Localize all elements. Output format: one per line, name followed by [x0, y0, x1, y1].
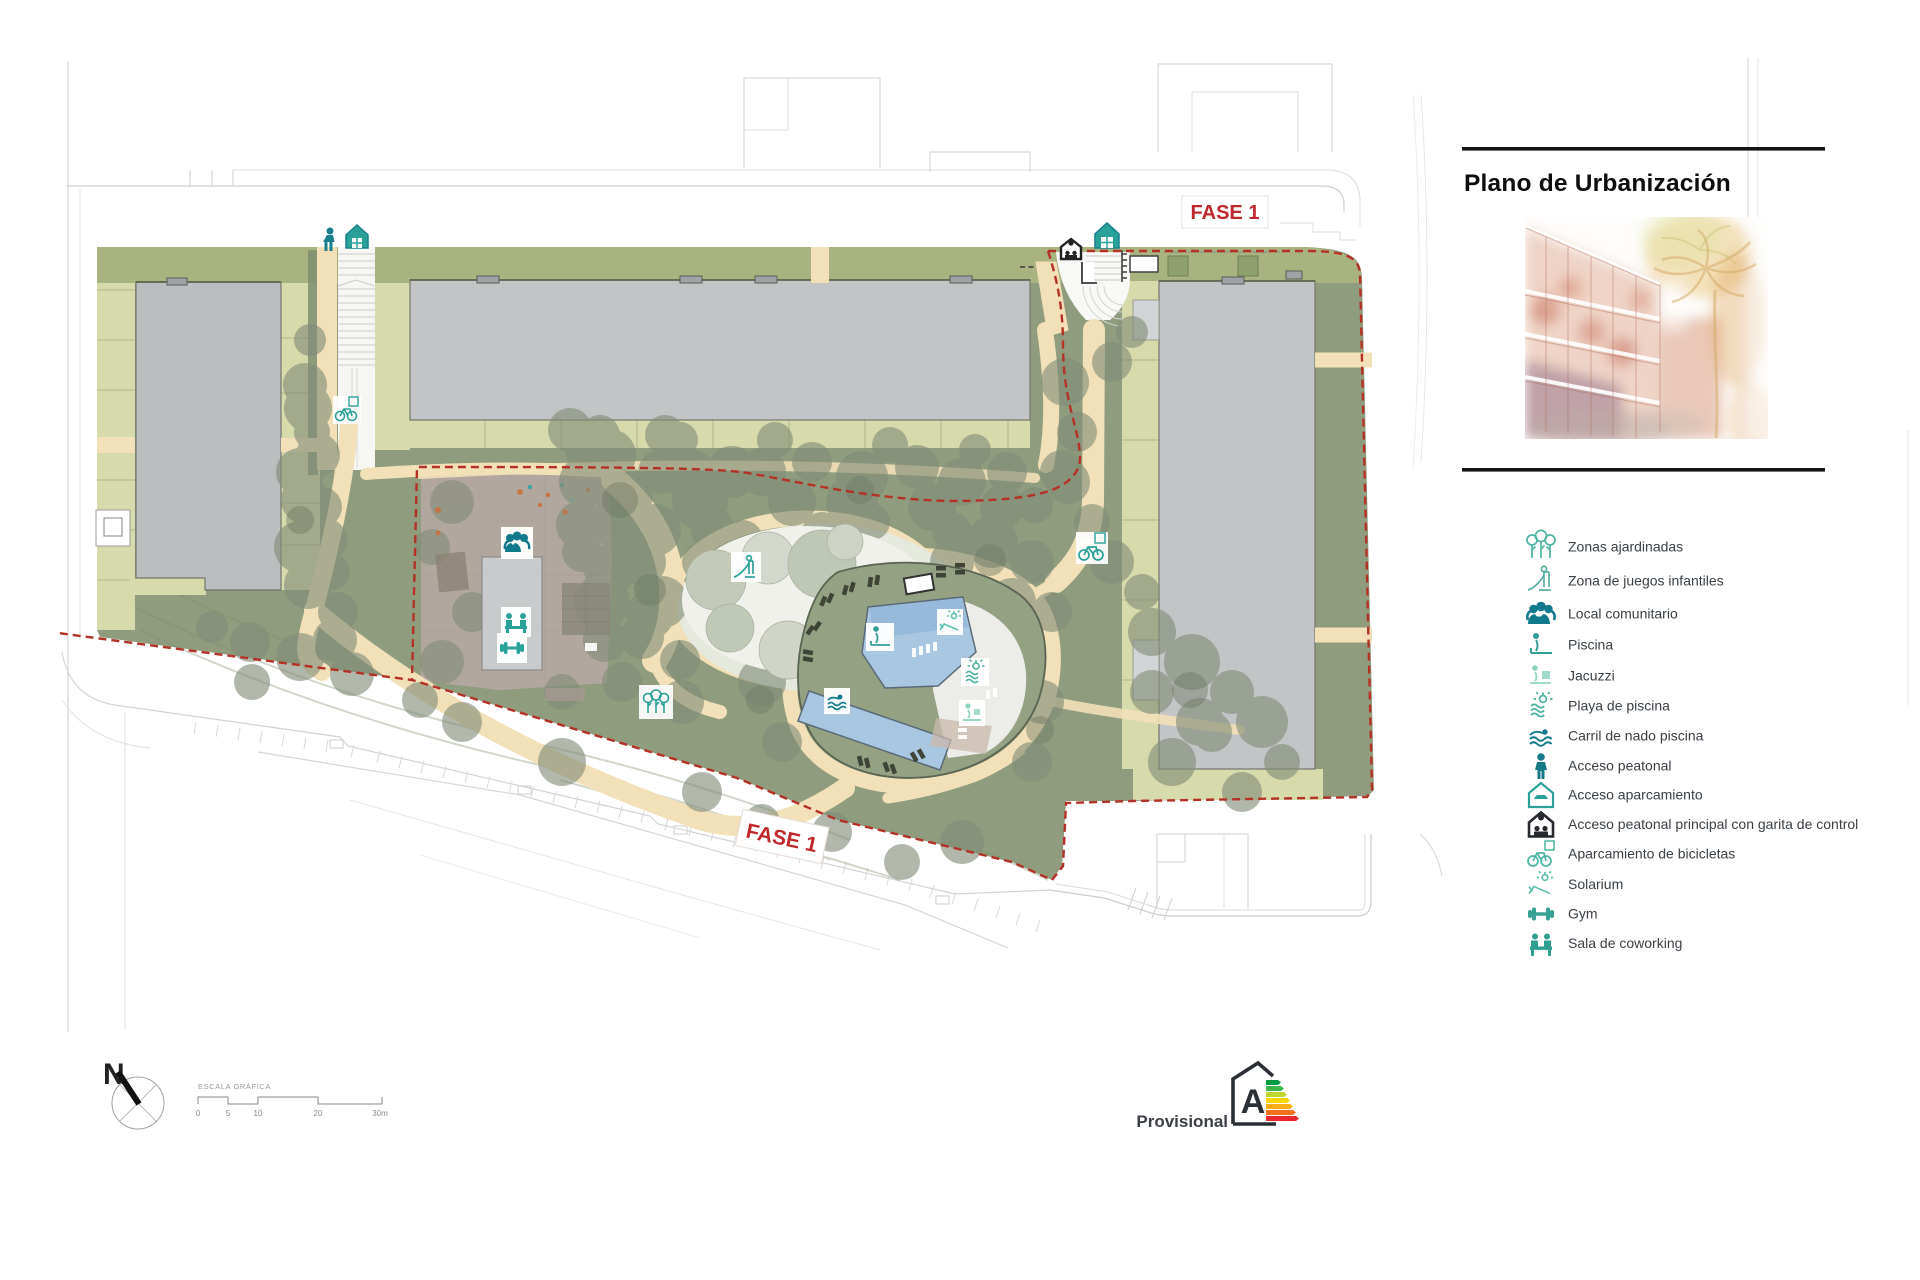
svg-text:Gym: Gym — [1568, 906, 1598, 922]
svg-text:Aparcamiento de bicicletas: Aparcamiento de bicicletas — [1568, 846, 1735, 862]
svg-text:Playa de piscina: Playa de piscina — [1568, 698, 1670, 714]
svg-text:Carril de nado piscina: Carril de nado piscina — [1568, 728, 1704, 744]
svg-text:Solarium: Solarium — [1568, 876, 1623, 892]
svg-text:Piscina: Piscina — [1568, 637, 1613, 653]
svg-text:A: A — [1241, 1083, 1266, 1121]
svg-text:ESCALA GRÁFICA: ESCALA GRÁFICA — [198, 1082, 271, 1091]
svg-text:Acceso peatonal principal con: Acceso peatonal principal con garita de … — [1568, 816, 1858, 832]
svg-text:Plano de Urbanización: Plano de Urbanización — [1464, 170, 1731, 197]
svg-text:10: 10 — [254, 1109, 263, 1118]
svg-text:Sala de coworking: Sala de coworking — [1568, 935, 1682, 951]
svg-text:0: 0 — [196, 1109, 201, 1118]
svg-text:Acceso peatonal: Acceso peatonal — [1568, 758, 1672, 774]
svg-text:FASE 1: FASE 1 — [1191, 202, 1260, 224]
svg-text:Local comunitario: Local comunitario — [1568, 606, 1678, 622]
svg-text:Zonas ajardinadas: Zonas ajardinadas — [1568, 539, 1683, 555]
svg-text:Jacuzzi: Jacuzzi — [1568, 668, 1615, 684]
svg-text:Provisional: Provisional — [1136, 1112, 1228, 1131]
svg-text:30m: 30m — [372, 1109, 388, 1118]
svg-text:5: 5 — [226, 1109, 231, 1118]
svg-text:Acceso aparcamiento: Acceso aparcamiento — [1568, 787, 1703, 803]
svg-text:20: 20 — [314, 1109, 323, 1118]
svg-text:Zona de juegos infantiles: Zona de juegos infantiles — [1568, 573, 1724, 589]
